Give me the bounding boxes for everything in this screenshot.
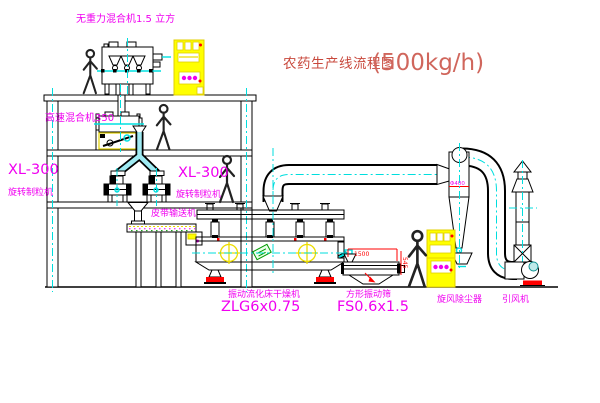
title-capacity: (500kg/h): [372, 50, 484, 76]
label-high-speed-mixer: 高速混合机350: [45, 111, 114, 124]
operator-figure-1: [84, 50, 97, 93]
label-gravity-mixer: 无重力混合机1.5 立方: [76, 12, 175, 25]
button-icon: [433, 265, 437, 269]
label-granulator-center-name: 旋转制粒机: [176, 188, 221, 200]
exhaust-stack: [509, 160, 537, 266]
indicator-lamp-icon: [199, 44, 202, 47]
button-icon: [444, 265, 448, 269]
fan-motor-icon: [529, 262, 538, 271]
label-fan: 引风机: [502, 293, 529, 305]
button-icon: [193, 76, 197, 80]
indicator-lamp-icon: [451, 235, 454, 238]
dim-screen-height: 545: [401, 257, 408, 269]
belt-conveyor: [127, 224, 202, 287]
label-granulator-center-model: XL-300: [178, 165, 229, 181]
button-icon: [187, 76, 191, 80]
floor-slab-2: [47, 150, 252, 156]
operator-figure-4: [409, 231, 426, 286]
dryer-feed-box: [186, 232, 202, 245]
dim-screen-length: 1500: [354, 251, 369, 258]
vibrating-screen: [341, 249, 405, 284]
label-granulator-left-model: XL-300: [8, 162, 59, 178]
label-dryer-model: ZLG6x0.75: [221, 299, 300, 315]
induced-draft-fan: [505, 262, 545, 286]
floor-slab-3: [47, 202, 252, 208]
diagram-canvas: 无重力混合机1.5 立方 农药生产线流程图 (500kg/h) 高速混合机350…: [0, 0, 600, 403]
dryer-foot: [204, 270, 336, 284]
label-belt-conveyor: 皮带输送机: [151, 207, 196, 219]
exhaust-duct: [273, 175, 439, 207]
label-screen-model: FS0.6x1.5: [337, 299, 409, 315]
control-cabinet-top: [174, 40, 204, 95]
discharge-pipe: [128, 203, 148, 225]
label-cyclone: 旋风除尘器: [437, 293, 482, 305]
button-icon: [182, 76, 186, 80]
dim-cyclone: Φ400: [450, 181, 465, 187]
granulator-right: [143, 168, 170, 206]
gravity-mixer: [97, 38, 171, 96]
floor-slab-top: [44, 95, 256, 101]
name-plate: [253, 244, 271, 259]
granulator-left: [104, 168, 131, 206]
flow-diagram: 无重力混合机1.5 立方 农药生产线流程图 (500kg/h) 高速混合机350…: [0, 0, 600, 403]
operator-figure-2: [157, 105, 171, 150]
control-cabinet-ground: [427, 230, 455, 287]
button-icon: [439, 265, 443, 269]
label-granulator-left-name: 旋转制粒机: [8, 186, 53, 198]
